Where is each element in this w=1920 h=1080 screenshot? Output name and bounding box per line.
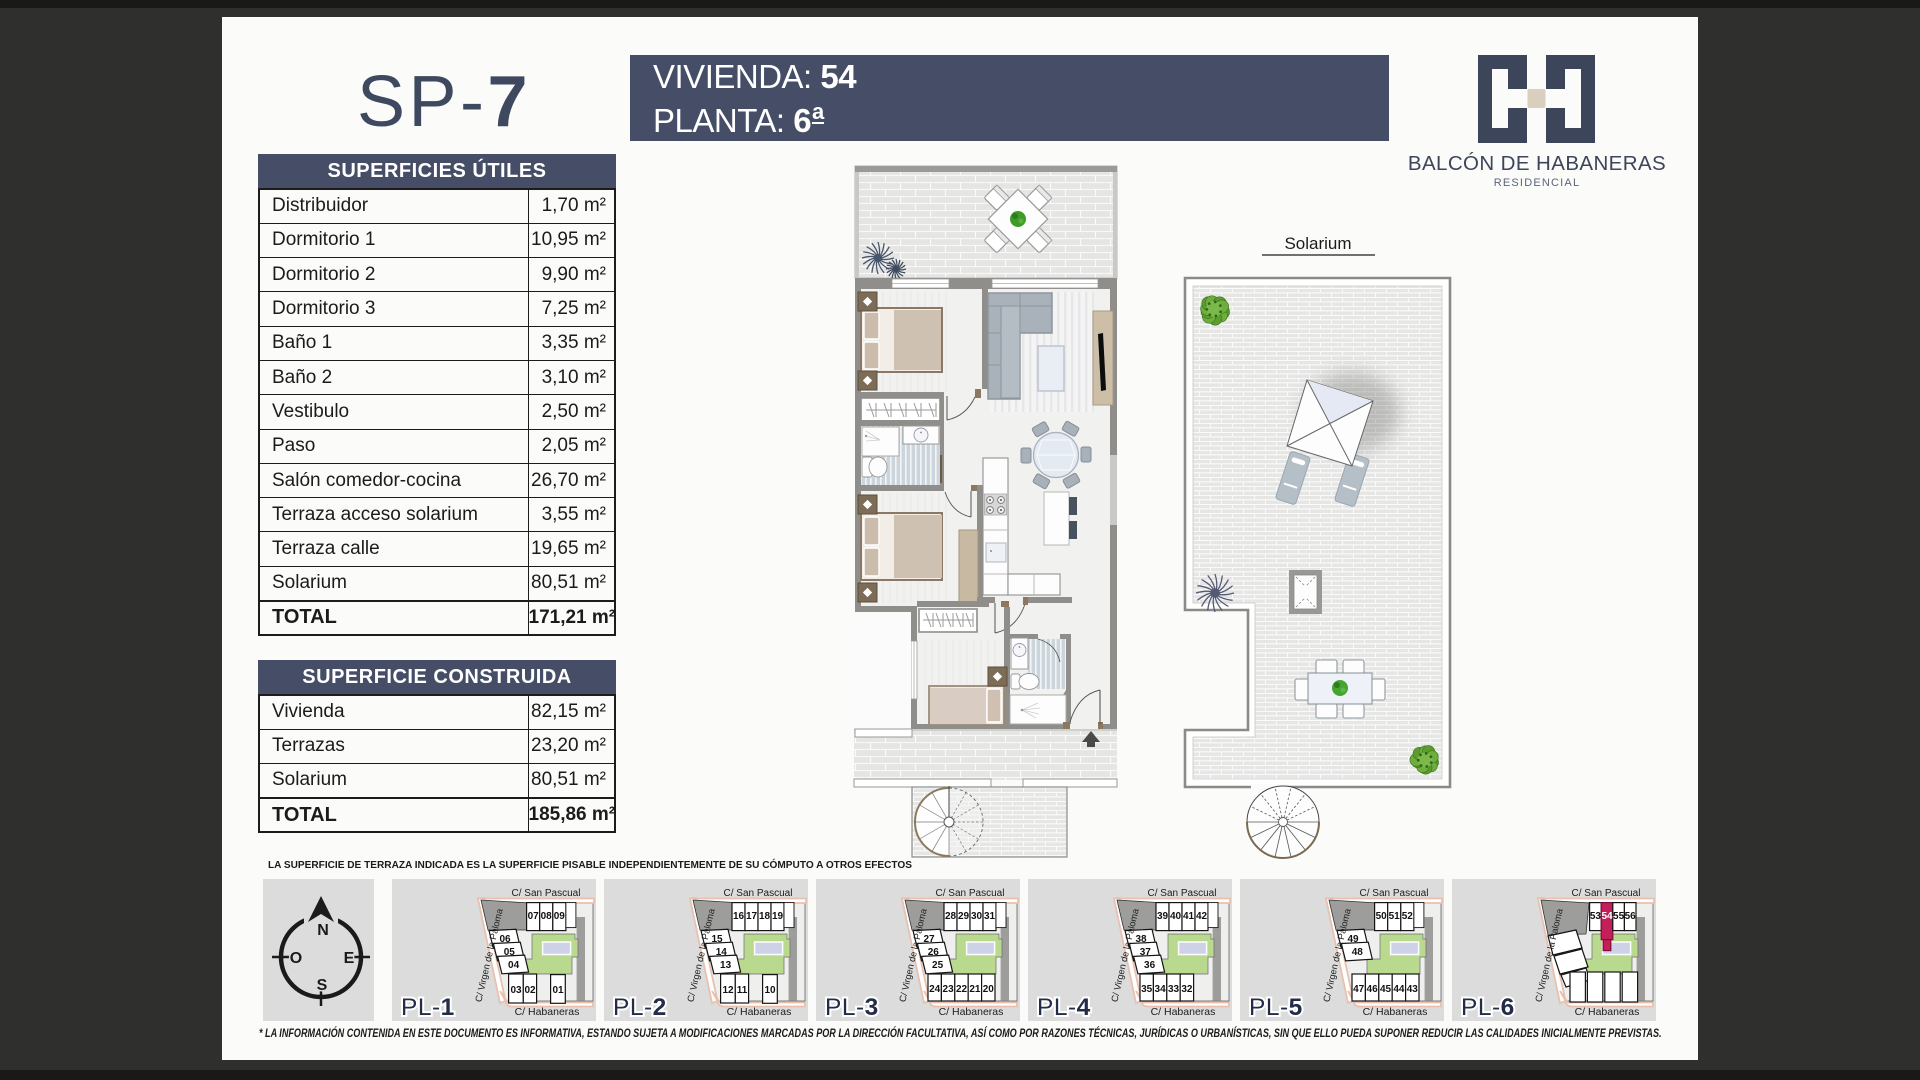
svg-text:17: 17 xyxy=(746,911,758,922)
svg-text:PL-1: PL-1 xyxy=(401,994,455,1021)
svg-text:39: 39 xyxy=(1157,911,1169,922)
svg-text:C/ San Pascual: C/ San Pascual xyxy=(512,888,581,899)
svg-text:C/ Habaneras: C/ Habaneras xyxy=(1575,1006,1640,1018)
svg-text:Solarium: Solarium xyxy=(1284,234,1351,253)
svg-text:16: 16 xyxy=(733,911,745,922)
svg-text:12: 12 xyxy=(722,985,734,996)
svg-text:C/ San Pascual: C/ San Pascual xyxy=(1572,888,1641,899)
svg-text:PL-3: PL-3 xyxy=(825,994,879,1021)
svg-text:49: 49 xyxy=(1347,934,1359,945)
svg-text:PL-2: PL-2 xyxy=(613,994,667,1021)
svg-text:28: 28 xyxy=(945,911,957,922)
svg-text:C/ Habaneras: C/ Habaneras xyxy=(1363,1006,1428,1018)
svg-text:15: 15 xyxy=(711,934,723,945)
svg-text:29: 29 xyxy=(958,911,970,922)
svg-text:PL-5: PL-5 xyxy=(1249,994,1303,1021)
svg-text:53: 53 xyxy=(1590,911,1602,922)
svg-text:24: 24 xyxy=(929,984,941,995)
svg-text:S: S xyxy=(317,977,328,994)
svg-text:O: O xyxy=(290,950,302,967)
svg-text:14: 14 xyxy=(716,947,728,958)
svg-text:08: 08 xyxy=(541,911,553,922)
svg-text:06: 06 xyxy=(499,934,511,945)
svg-text:18: 18 xyxy=(759,911,771,922)
svg-text:31: 31 xyxy=(984,911,996,922)
svg-text:10: 10 xyxy=(764,985,776,996)
svg-text:32: 32 xyxy=(1181,984,1193,995)
svg-text:48: 48 xyxy=(1352,947,1364,958)
svg-text:47: 47 xyxy=(1353,984,1365,995)
svg-text:13: 13 xyxy=(720,960,732,971)
svg-text:05: 05 xyxy=(504,947,516,958)
svg-text:43: 43 xyxy=(1407,984,1419,995)
svg-text:PL-4: PL-4 xyxy=(1037,994,1091,1021)
svg-text:56: 56 xyxy=(1625,911,1637,922)
svg-text:02: 02 xyxy=(524,985,536,996)
svg-text:51: 51 xyxy=(1389,911,1401,922)
svg-text:38: 38 xyxy=(1135,934,1147,945)
svg-text:C/ San Pascual: C/ San Pascual xyxy=(724,888,793,899)
svg-text:41: 41 xyxy=(1183,911,1195,922)
svg-text:04: 04 xyxy=(508,960,520,971)
svg-text:46: 46 xyxy=(1367,984,1379,995)
svg-text:C/ San Pascual: C/ San Pascual xyxy=(936,888,1005,899)
svg-text:34: 34 xyxy=(1155,984,1167,995)
svg-text:21: 21 xyxy=(969,984,981,995)
svg-text:09: 09 xyxy=(554,911,566,922)
svg-text:03: 03 xyxy=(510,985,522,996)
svg-text:42: 42 xyxy=(1196,911,1208,922)
svg-text:E: E xyxy=(344,950,355,967)
svg-text:PL-6: PL-6 xyxy=(1461,994,1515,1021)
svg-text:54: 54 xyxy=(1601,911,1613,922)
svg-text:30: 30 xyxy=(971,911,983,922)
svg-text:26: 26 xyxy=(928,947,940,958)
svg-text:22: 22 xyxy=(956,984,968,995)
svg-text:19: 19 xyxy=(772,911,784,922)
svg-text:25: 25 xyxy=(932,960,944,971)
svg-text:C/ Habaneras: C/ Habaneras xyxy=(727,1006,792,1018)
svg-text:RESIDENCIAL: RESIDENCIAL xyxy=(1494,177,1581,189)
svg-text:C/ Habaneras: C/ Habaneras xyxy=(1151,1006,1216,1018)
svg-text:37: 37 xyxy=(1140,947,1152,958)
svg-text:36: 36 xyxy=(1144,960,1156,971)
svg-text:50: 50 xyxy=(1376,911,1388,922)
svg-text:20: 20 xyxy=(983,984,995,995)
svg-text:N: N xyxy=(317,922,329,939)
svg-text:C/ San Pascual: C/ San Pascual xyxy=(1360,888,1429,899)
svg-text:C/ Habaneras: C/ Habaneras xyxy=(939,1006,1004,1018)
svg-text:C/ Habaneras: C/ Habaneras xyxy=(515,1006,580,1018)
svg-text:23: 23 xyxy=(943,984,955,995)
svg-text:45: 45 xyxy=(1380,984,1392,995)
svg-text:55: 55 xyxy=(1613,911,1625,922)
svg-text:27: 27 xyxy=(923,934,935,945)
svg-text:33: 33 xyxy=(1168,984,1180,995)
svg-text:40: 40 xyxy=(1170,911,1182,922)
svg-text:35: 35 xyxy=(1141,984,1153,995)
svg-text:07: 07 xyxy=(528,911,540,922)
svg-text:01: 01 xyxy=(552,985,564,996)
svg-text:C/ San Pascual: C/ San Pascual xyxy=(1148,888,1217,899)
svg-text:BALCÓN DE HABANERAS: BALCÓN DE HABANERAS xyxy=(1408,152,1666,175)
svg-text:11: 11 xyxy=(737,985,748,996)
svg-text:52: 52 xyxy=(1402,911,1414,922)
svg-text:44: 44 xyxy=(1393,984,1405,995)
